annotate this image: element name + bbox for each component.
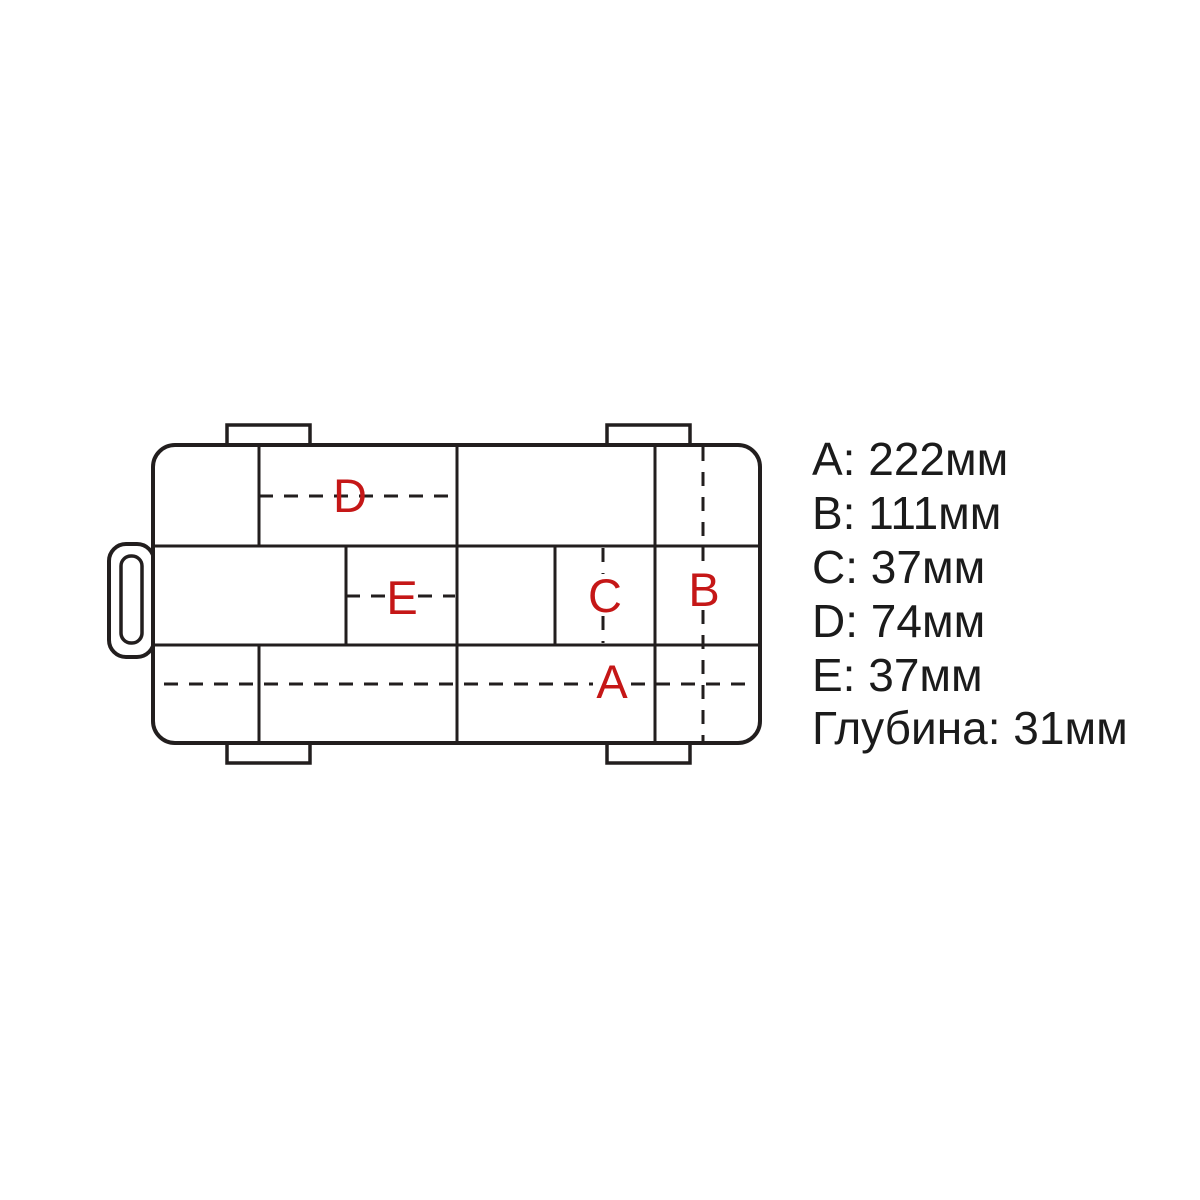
legend-line-e: E: 37мм: [812, 648, 1128, 702]
dimension-label-b: B: [688, 563, 719, 616]
page: D E C B A A: 222мм B: 111мм C: 37мм D: 7…: [0, 0, 1200, 1200]
dimension-label-a: A: [596, 655, 628, 708]
legend-line-d: D: 74мм: [812, 594, 1128, 648]
legend-line-c: C: 37мм: [812, 540, 1128, 594]
legend-line-a: A: 222мм: [812, 432, 1128, 486]
dimension-label-e: E: [386, 571, 417, 624]
dimension-legend: A: 222мм B: 111мм C: 37мм D: 74мм E: 37м…: [812, 432, 1128, 755]
dimension-label-c: C: [588, 569, 622, 622]
latch-slot: [121, 556, 142, 643]
legend-line-depth: Глубина: 31мм: [812, 701, 1128, 755]
legend-line-b: B: 111мм: [812, 486, 1128, 540]
dimension-label-d: D: [333, 469, 367, 522]
